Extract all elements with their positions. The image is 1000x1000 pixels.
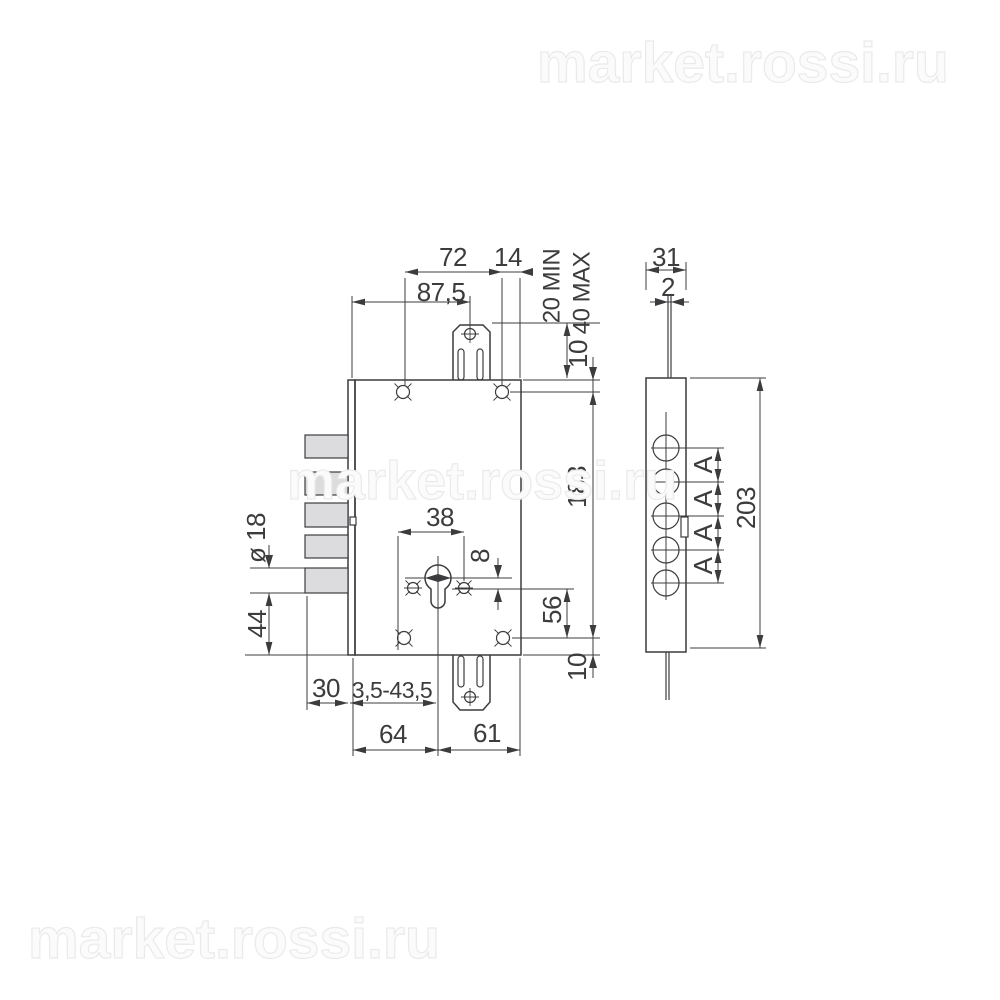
latch-bolt <box>305 568 348 593</box>
dim-61-label: 61 <box>473 718 501 748</box>
top-mounting-tab <box>453 325 490 380</box>
dim-8-label: 8 <box>465 549 495 563</box>
screw-hole-top-left <box>395 384 412 401</box>
top-tab-slot <box>458 349 464 380</box>
cylinder-fixing-hole-right <box>455 581 473 596</box>
dim-40-max-label: 40 MAX <box>569 251 596 334</box>
top-tab-slot <box>477 349 483 380</box>
dim-2-label: 2 <box>661 272 675 302</box>
cylinder-fixing-hole-left <box>404 581 422 596</box>
dim-64-label: 64 <box>379 719 407 749</box>
lock-technical-drawing-page: 87,5 72 14 20 MIN 40 MAX 10 183 38 8 56 … <box>0 0 1000 1000</box>
watermark-top-right: market.rossi.ru <box>537 30 949 96</box>
screw-hole-bottom-right <box>495 630 512 647</box>
dim-10-bottom-label: 10 <box>562 653 592 681</box>
latch-pin <box>350 517 356 525</box>
dim-a3-label: A <box>688 523 718 541</box>
dim-44-label: 44 <box>242 610 272 638</box>
bottom-mounting-tab <box>453 655 490 710</box>
dim-14-label: 14 <box>494 242 522 272</box>
bottom-tab-slot <box>458 656 464 687</box>
dim-20-min-label: 20 MIN <box>539 249 566 323</box>
deadbolt-4 <box>305 535 348 558</box>
dim-10-top-label: 10 <box>563 340 593 368</box>
dim-203-label: 203 <box>731 487 761 529</box>
watermark-center: market.rossi.ru <box>287 450 677 512</box>
dim-56-label: 56 <box>537 596 567 624</box>
dim-72-label: 72 <box>439 242 467 272</box>
dim-dia-18-label: ø 18 <box>241 513 271 563</box>
dim-31-label: 31 <box>652 242 680 272</box>
side-notch <box>681 517 688 537</box>
bottom-tab-slot <box>477 656 483 687</box>
side-dimension-labels: 31 2 203 A A A A <box>652 242 761 574</box>
dim-a4-label: A <box>688 556 718 574</box>
dim-3-5-43-5-label: 3,5-43,5 <box>352 677 432 703</box>
dim-a1-label: A <box>688 455 718 473</box>
dim-87-5-label: 87,5 <box>417 277 466 307</box>
screw-hole-top-right <box>494 384 511 401</box>
watermark-bottom-left: market.rossi.ru <box>28 906 440 972</box>
dim-30-label: 30 <box>312 673 340 703</box>
dim-a2-label: A <box>688 489 718 507</box>
